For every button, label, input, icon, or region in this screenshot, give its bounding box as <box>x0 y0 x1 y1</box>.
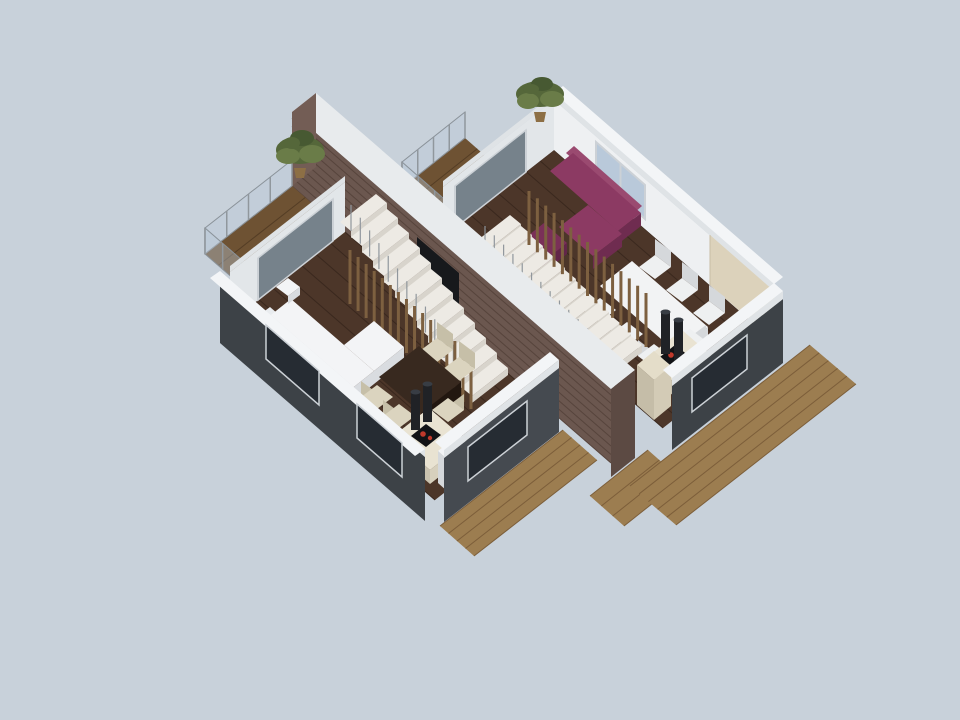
extractor-hood-top <box>411 390 421 395</box>
burner <box>420 431 426 437</box>
plant-pot <box>534 112 546 122</box>
plant-foliage <box>284 137 300 149</box>
plant-pot <box>294 168 306 178</box>
extractor-hood <box>423 384 432 422</box>
extractor-hood-top <box>674 318 684 323</box>
extractor-hood-top <box>423 382 433 387</box>
plant-foliage <box>523 84 539 94</box>
plant-foliage <box>517 93 539 109</box>
render-stage <box>0 0 960 720</box>
extractor-hood <box>661 312 670 354</box>
burner <box>428 436 432 440</box>
plant-foliage <box>276 148 300 164</box>
floorplan-render <box>0 0 960 720</box>
plant-foliage <box>540 91 564 107</box>
extractor-hood <box>411 392 420 430</box>
plant-foliage <box>299 145 325 163</box>
extractor-hood-top <box>661 310 671 315</box>
